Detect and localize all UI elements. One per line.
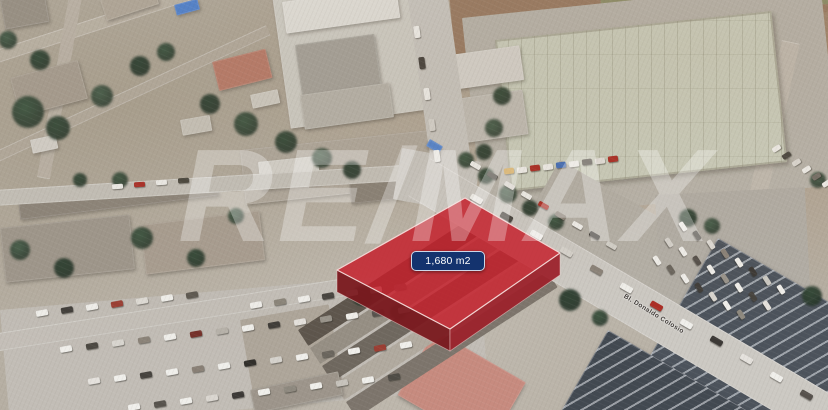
aerial-map-view[interactable]: Bl. Donaldo Colosio RE/MAX 1,680 m2 <box>0 0 828 410</box>
area-badge-label: 1,680 m2 <box>425 256 470 267</box>
area-badge[interactable]: 1,680 m2 <box>411 251 485 271</box>
parcel-highlight[interactable] <box>0 0 828 410</box>
